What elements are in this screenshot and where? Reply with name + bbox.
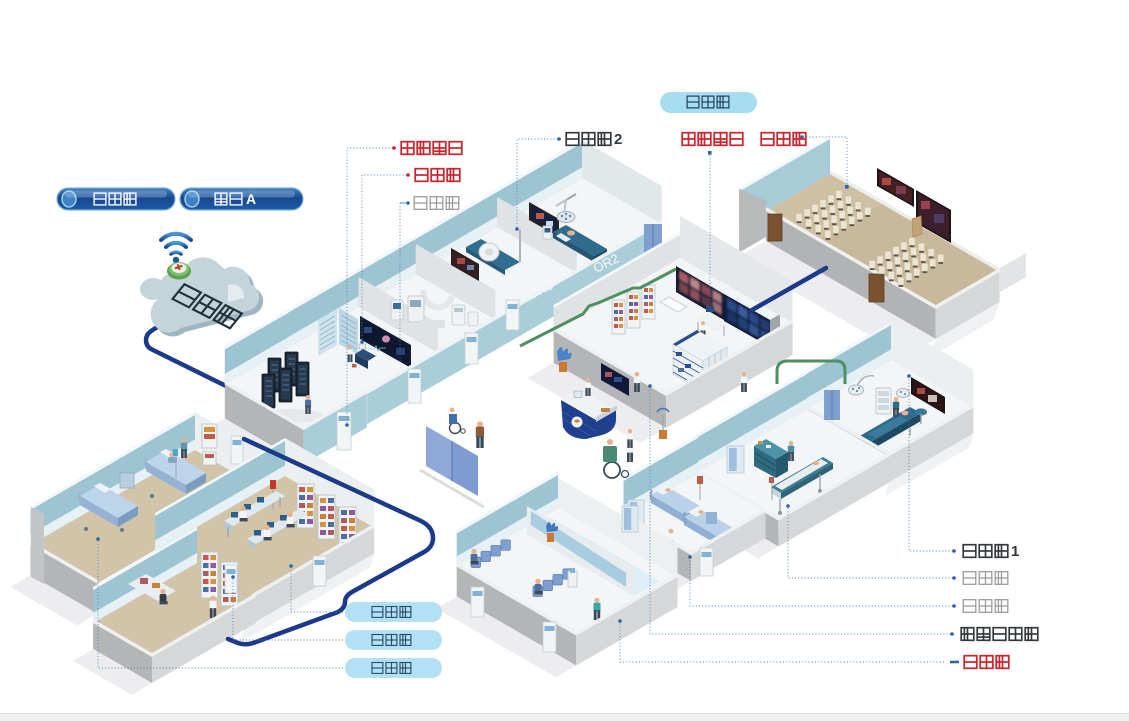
svg-text:2: 2 — [614, 131, 622, 148]
svg-text:A: A — [246, 191, 256, 207]
svg-text:1: 1 — [1011, 543, 1019, 560]
